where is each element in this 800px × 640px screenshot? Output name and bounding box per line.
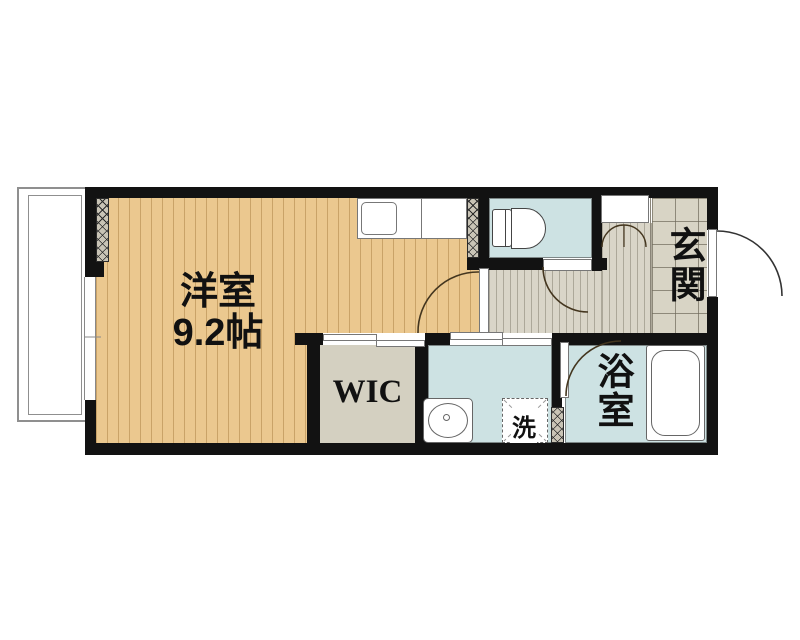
genkan-step-line [650, 198, 651, 333]
hallway-entry [602, 223, 652, 333]
wic-sliding-panel [323, 334, 377, 341]
bathroom-door-leaf [560, 342, 569, 398]
genkan-label: 玄関 [657, 226, 711, 336]
wic-label: WIC [320, 374, 415, 411]
bathroom-label: 浴室 [585, 352, 639, 444]
washroom-sliding-panel [450, 332, 503, 340]
washroom-sliding-panel [502, 338, 552, 346]
main-room-size: 9.2帖 [128, 313, 308, 354]
balcony-inner-line [28, 195, 82, 415]
kitchen-sink-icon [361, 202, 397, 235]
wall-left-upper [85, 187, 96, 262]
entrance-door-arc [717, 231, 782, 296]
wall-right-upper [707, 187, 718, 230]
wall-bottom [85, 443, 718, 455]
kitchen-counter-divider [421, 199, 422, 238]
hallway-main [489, 270, 602, 333]
main-room-label: 洋室 9.2帖 [128, 272, 308, 354]
wic-sliding-panel [376, 340, 425, 347]
toilet-tank-icon [492, 209, 512, 247]
shoe-cabinet-icon [601, 195, 649, 223]
main-room-door-leaf [479, 268, 489, 333]
wall-wic-left [307, 345, 320, 443]
floor-plan: 洋室 9.2帖 WIC 玄関 浴室 洗 [0, 0, 800, 640]
wall-mid-horizontal-b [425, 333, 450, 345]
wash-basin-faucet-icon [443, 414, 450, 421]
bathtub-inner-icon [651, 350, 700, 436]
wall-main-hall [479, 187, 489, 268]
main-room-name: 洋室 [128, 272, 308, 313]
toilet-tank-line [505, 210, 506, 246]
pillar-hatch-icon [467, 198, 479, 258]
toilet-door-leaf [543, 259, 592, 271]
window-icon [84, 277, 96, 400]
washer-label: 洗 [511, 408, 537, 443]
pillar-hatch-icon [551, 407, 564, 443]
pillar-hatch-icon [96, 198, 109, 262]
wall-left-stub [85, 262, 104, 277]
